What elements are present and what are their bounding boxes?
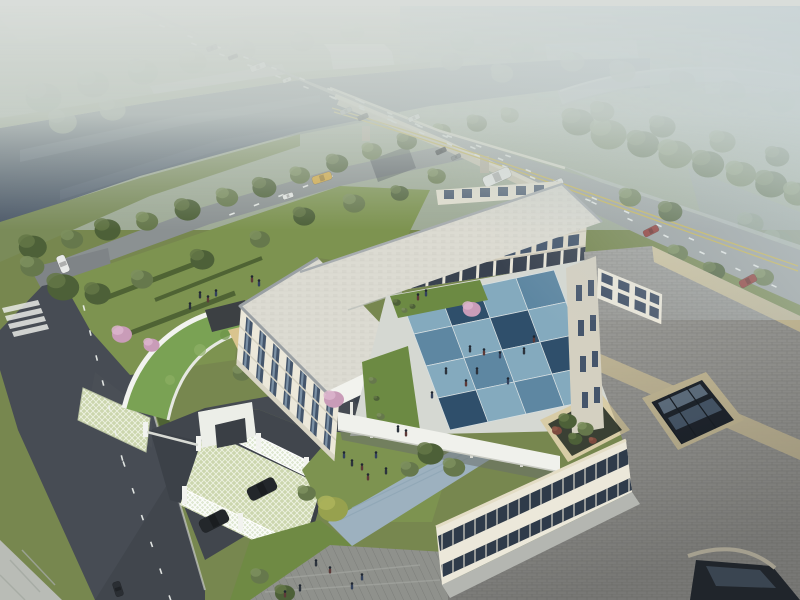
person	[284, 590, 287, 597]
person	[431, 391, 434, 398]
person	[445, 367, 448, 374]
person	[523, 347, 526, 354]
person	[299, 584, 302, 591]
person	[533, 335, 536, 342]
person	[315, 559, 318, 566]
rendering-canvas	[0, 0, 800, 600]
person	[361, 573, 364, 580]
person	[329, 566, 332, 573]
person	[385, 467, 388, 474]
person	[507, 377, 510, 384]
person	[258, 279, 261, 286]
person	[405, 429, 408, 436]
person	[189, 302, 192, 309]
person	[367, 473, 370, 480]
person	[361, 463, 364, 470]
person	[215, 289, 218, 296]
person	[199, 291, 202, 298]
person	[251, 275, 254, 282]
person	[343, 451, 346, 458]
person	[499, 351, 502, 358]
aerial-rendering	[0, 0, 800, 600]
person	[351, 459, 354, 466]
person	[207, 295, 210, 302]
person	[397, 425, 400, 432]
person	[476, 367, 479, 374]
person	[465, 379, 468, 386]
person	[375, 451, 378, 458]
person	[351, 582, 354, 589]
person	[483, 348, 486, 355]
person	[469, 345, 472, 352]
